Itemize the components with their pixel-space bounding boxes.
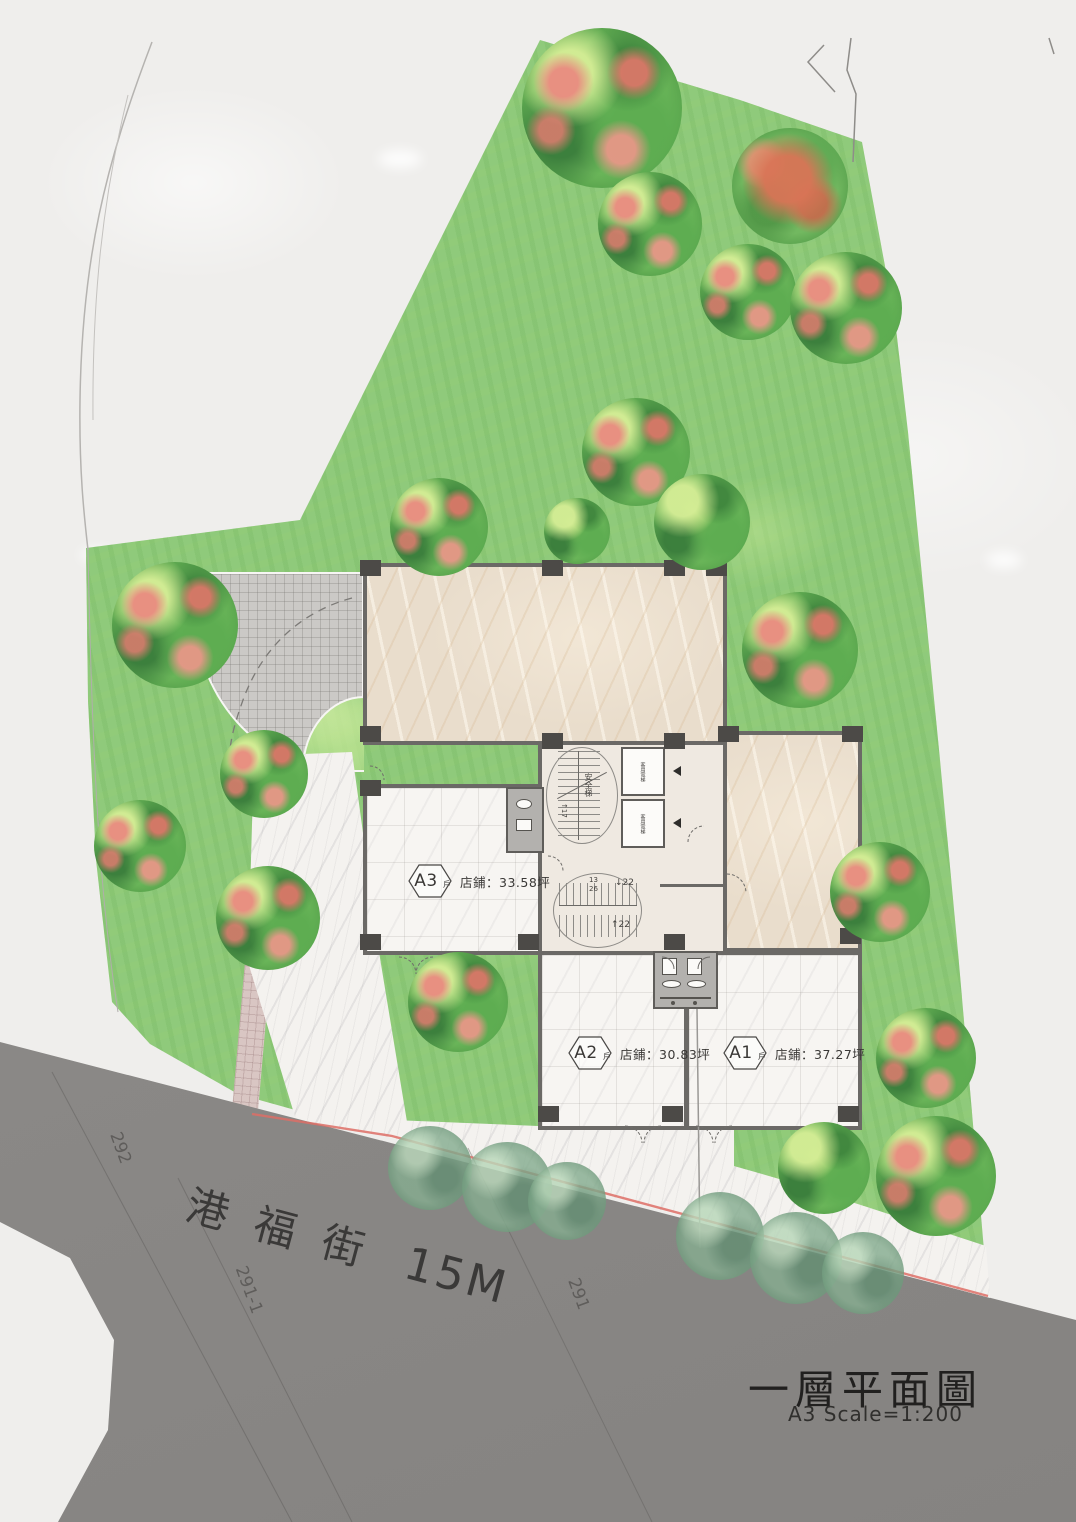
- unit-suffix: 戶: [443, 879, 451, 890]
- unit-code: A2: [568, 1043, 604, 1063]
- door-swing-a2-entry: [625, 1126, 661, 1143]
- adjacent-road-line: [93, 95, 128, 420]
- plan-scale-note: A3 Scale=1:200: [788, 1402, 963, 1426]
- unit-suffix: 戶: [603, 1051, 611, 1062]
- tree: [654, 474, 750, 570]
- tree: [742, 592, 858, 708]
- unit-label-a2: A2 戶 店鋪：30.83坪: [568, 1036, 710, 1070]
- tree: [522, 28, 682, 188]
- tree: [220, 730, 308, 818]
- unit-hexagon: A3 戶: [408, 864, 452, 898]
- unit-area: 店鋪：37.27坪: [775, 1044, 865, 1063]
- door-swing-a3-side: [370, 766, 384, 780]
- door-swing-right-hall: [727, 874, 746, 893]
- tree: [876, 1008, 976, 1108]
- survey-mark: [808, 45, 835, 92]
- door-swing-core: [688, 826, 704, 842]
- tree: [778, 1122, 870, 1214]
- survey-mark: [1049, 38, 1054, 54]
- unit-label-a3: A3 戶 店鋪：33.58坪: [408, 864, 550, 898]
- unit-area: 店鋪：30.83坪: [620, 1044, 710, 1063]
- linework-overlay: [0, 0, 1076, 1522]
- door-swing-a1-entry: [696, 1126, 732, 1143]
- unit-hexagon: A2 戶: [568, 1036, 612, 1070]
- unit-code: A3: [408, 871, 444, 891]
- site-plan-canvas: 安全梯 ↑17 客用電梯 客用電梯 13 26 ↓22 ↑22: [0, 0, 1076, 1522]
- tree: [700, 244, 796, 340]
- street-tree: [528, 1162, 606, 1240]
- tree: [830, 842, 930, 942]
- tree: [732, 128, 848, 244]
- unit-suffix: 戶: [758, 1051, 766, 1062]
- survey-mark: [847, 38, 856, 162]
- unit-label-a1: A1 戶 店鋪：37.27坪: [723, 1036, 865, 1070]
- unit-area: 店鋪：33.58坪: [460, 872, 550, 891]
- tree: [94, 800, 186, 892]
- tree: [598, 172, 702, 276]
- tree: [544, 498, 610, 564]
- tree: [390, 478, 488, 576]
- unit-hexagon: A1 戶: [723, 1036, 767, 1070]
- adjacent-road-line: [80, 42, 152, 550]
- street-tree: [822, 1232, 904, 1314]
- street-tree: [388, 1126, 472, 1210]
- tree: [790, 252, 902, 364]
- tree: [112, 562, 238, 688]
- unit-code: A1: [723, 1043, 759, 1063]
- tree: [876, 1116, 996, 1236]
- door-swing-restroom: [662, 957, 710, 969]
- tree: [408, 952, 508, 1052]
- tree: [216, 866, 320, 970]
